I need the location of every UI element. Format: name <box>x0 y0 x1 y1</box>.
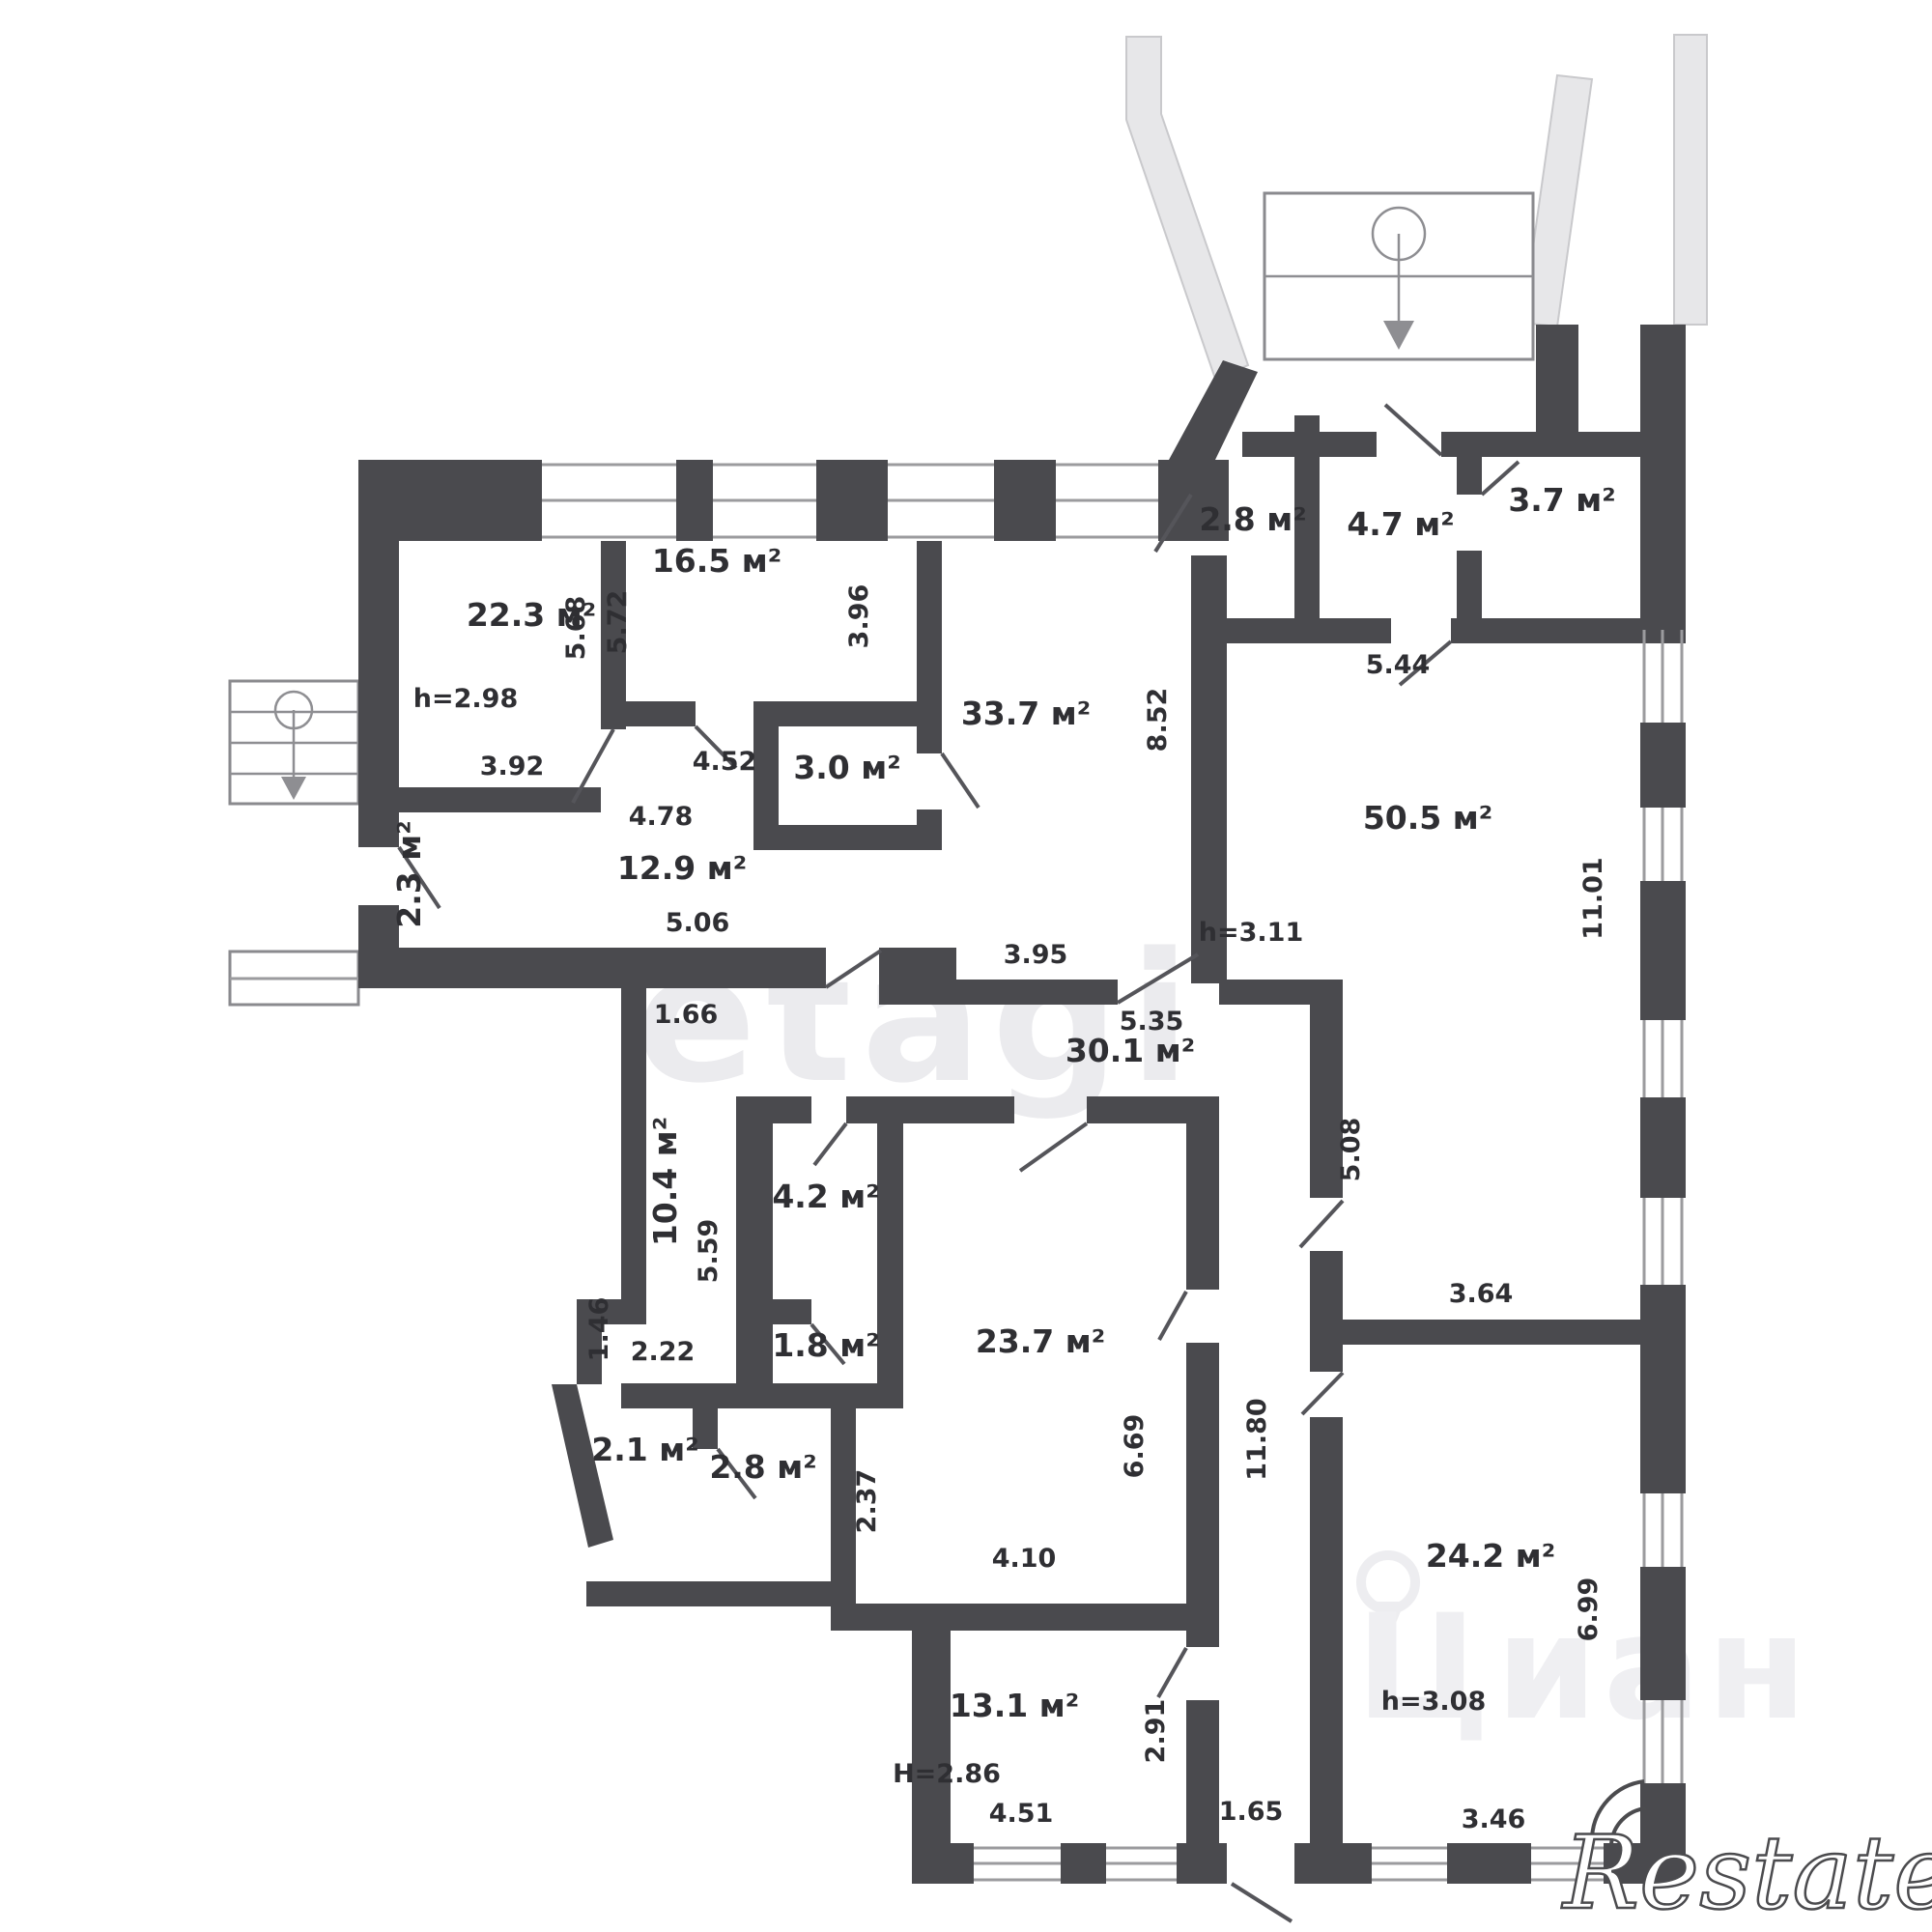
room-area-label: 1.8 м² <box>772 1326 879 1364</box>
stair-left <box>230 681 358 804</box>
dimension-label: 3.64 <box>1449 1279 1514 1309</box>
exterior-stair-structure <box>1126 35 1707 379</box>
dimension-label: 5.35 <box>1120 1007 1184 1037</box>
dimension-label: 1.46 <box>584 1297 614 1362</box>
restate-watermark-text: Restate <box>1561 1814 1932 1932</box>
dimension-label: 2.91 <box>1141 1699 1171 1764</box>
dimension-label: 2.22 <box>631 1337 696 1367</box>
room-area-label: 4.2 м² <box>772 1178 879 1215</box>
room-area-label: 13.1 м² <box>950 1687 1079 1724</box>
room-area-label: 2.3 м² <box>390 820 428 927</box>
etagi-watermark-text: etagi <box>636 914 1201 1122</box>
dimension-label: 11.80 <box>1242 1398 1272 1480</box>
dimension-label: 5.72 <box>603 590 633 655</box>
room-area-label: 12.9 м² <box>617 849 747 887</box>
room-area-label: 24.2 м² <box>1426 1537 1555 1575</box>
dimension-label: 4.51 <box>989 1799 1054 1829</box>
floor-plan-svg: etagi Циан <box>0 0 1932 1932</box>
room-area-label: 3.7 м² <box>1508 481 1615 519</box>
dimension-label: 5.06 <box>666 908 730 938</box>
room-area-label: 10.4 м² <box>646 1117 684 1246</box>
room-area-label: 4.7 м² <box>1347 505 1454 543</box>
room-area-label: 30.1 м² <box>1065 1032 1195 1069</box>
dimension-label: 5.44 <box>1366 650 1431 680</box>
dimension-label: 2.37 <box>852 1469 882 1534</box>
room-area-label: 33.7 м² <box>961 695 1091 732</box>
dimension-label: 8.52 <box>1143 688 1173 753</box>
ceiling-height-label: h=2.98 <box>413 684 518 714</box>
dimension-label: 11.01 <box>1578 857 1608 939</box>
dimension-label: 3.92 <box>480 752 545 781</box>
dimension-label: 5.59 <box>694 1219 724 1284</box>
dimension-label: 1.66 <box>654 1000 719 1030</box>
watermark-etagi: etagi <box>636 914 1201 1122</box>
room-area-label: 16.5 м² <box>652 542 781 580</box>
dimension-label: 5.08 <box>1336 1118 1366 1182</box>
room-area-label: 2.1 м² <box>591 1431 698 1468</box>
ceiling-height-label: h=3.08 <box>1381 1687 1486 1717</box>
room-area-label: 3.0 м² <box>793 749 900 786</box>
ceiling-height-label: H=2.86 <box>893 1759 1001 1789</box>
dimension-label: 4.10 <box>992 1544 1057 1574</box>
window-left-exterior <box>230 952 358 1005</box>
dimension-label: 4.52 <box>693 747 757 777</box>
ceiling-height-label: h=3.11 <box>1199 918 1303 948</box>
room-area-label: 23.7 м² <box>976 1322 1105 1360</box>
stair-landing-top <box>1264 193 1533 359</box>
dimension-label: 4.78 <box>629 802 694 832</box>
dimension-label: 1.65 <box>1219 1797 1284 1827</box>
room-area-label: 2.8 м² <box>709 1448 816 1486</box>
room-area-label: 2.8 м² <box>1199 500 1306 538</box>
dimension-label: 3.95 <box>1004 940 1068 970</box>
dimension-label: 6.99 <box>1574 1577 1604 1642</box>
floor-plan-page: etagi Циан <box>0 0 1932 1932</box>
dimension-label: 3.46 <box>1462 1804 1526 1834</box>
dimension-label: 5.68 <box>561 596 591 661</box>
dimension-label: 3.96 <box>844 584 874 649</box>
room-area-label: 50.5 м² <box>1363 799 1492 837</box>
watermark-restate: Restate <box>1561 1781 1932 1932</box>
dimension-label: 6.69 <box>1120 1414 1150 1479</box>
